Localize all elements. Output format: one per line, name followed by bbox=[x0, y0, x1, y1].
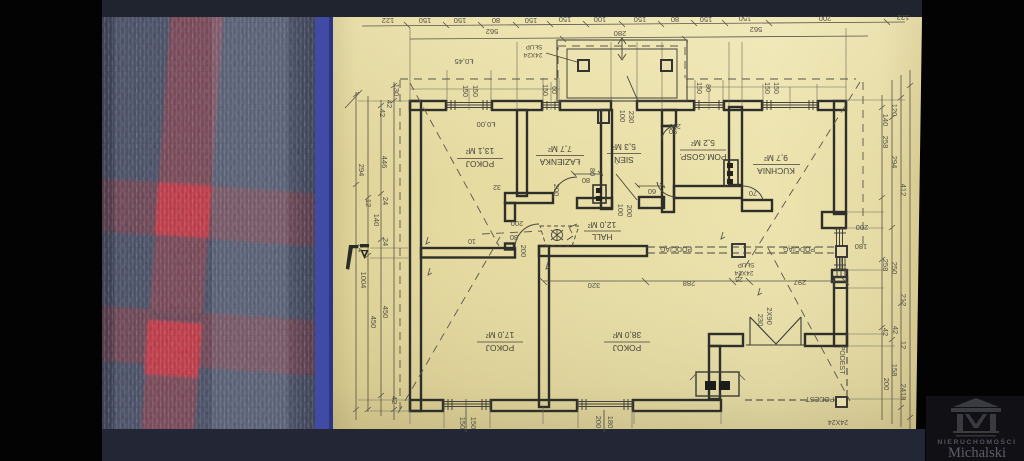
svg-text:SIEŃ: SIEŃ bbox=[614, 155, 634, 165]
svg-text:17,0 M²: 17,0 M² bbox=[486, 330, 515, 340]
svg-text:POKOJ: POKOJ bbox=[613, 343, 641, 353]
svg-text:150: 150 bbox=[471, 85, 478, 97]
svg-text:150: 150 bbox=[634, 15, 647, 24]
svg-text:PODEST: PODEST bbox=[838, 346, 845, 376]
svg-text:258: 258 bbox=[881, 259, 890, 272]
svg-text:446: 446 bbox=[380, 156, 389, 169]
svg-text:SŁUP: SŁUP bbox=[738, 261, 755, 268]
svg-text:150: 150 bbox=[525, 16, 538, 25]
svg-text:180: 180 bbox=[855, 242, 868, 251]
svg-text:POM.GOSP.: POM.GOSP. bbox=[680, 152, 727, 162]
svg-text:24: 24 bbox=[381, 238, 390, 246]
svg-text:288: 288 bbox=[683, 279, 696, 288]
svg-text:42: 42 bbox=[881, 328, 890, 336]
svg-text:2X90: 2X90 bbox=[765, 307, 774, 325]
svg-text:150: 150 bbox=[763, 82, 770, 94]
svg-text:42: 42 bbox=[385, 100, 394, 108]
svg-text:122: 122 bbox=[382, 16, 395, 25]
svg-text:80: 80 bbox=[582, 176, 590, 185]
svg-text:450: 450 bbox=[369, 316, 378, 329]
svg-text:80: 80 bbox=[671, 15, 679, 24]
svg-text:294: 294 bbox=[357, 164, 366, 177]
svg-text:412: 412 bbox=[899, 184, 908, 197]
svg-text:1004: 1004 bbox=[359, 272, 368, 289]
svg-text:PODCIĄG: PODCIĄG bbox=[783, 245, 815, 252]
svg-text:258: 258 bbox=[881, 136, 890, 149]
svg-text:297: 297 bbox=[794, 278, 807, 287]
svg-text:24: 24 bbox=[381, 197, 390, 205]
svg-text:12,0 M²: 12,0 M² bbox=[588, 220, 617, 230]
svg-text:2418: 2418 bbox=[899, 384, 908, 401]
svg-text:12: 12 bbox=[364, 199, 373, 207]
svg-text:5,3 M²: 5,3 M² bbox=[612, 142, 636, 152]
svg-text:130: 130 bbox=[392, 84, 401, 97]
svg-text:150: 150 bbox=[772, 82, 779, 94]
svg-text:70: 70 bbox=[749, 189, 757, 198]
svg-text:60: 60 bbox=[550, 86, 557, 94]
svg-text:200: 200 bbox=[819, 14, 832, 23]
svg-text:200: 200 bbox=[856, 223, 869, 232]
svg-text:90: 90 bbox=[669, 127, 677, 136]
svg-text:230: 230 bbox=[756, 314, 765, 327]
svg-text:9,7 M²: 9,7 M² bbox=[764, 153, 788, 163]
svg-text:PODEST: PODEST bbox=[805, 395, 835, 402]
svg-text:PODCIĄG: PODCIĄG bbox=[660, 245, 692, 252]
svg-text:Ł0,45: Ł0,45 bbox=[455, 57, 474, 66]
svg-text:280: 280 bbox=[614, 29, 627, 38]
svg-text:200: 200 bbox=[552, 184, 561, 197]
svg-text:250: 250 bbox=[890, 262, 899, 275]
svg-text:562: 562 bbox=[486, 27, 499, 36]
svg-text:140: 140 bbox=[372, 214, 381, 227]
svg-text:13,1 M²: 13,1 M² bbox=[466, 146, 495, 156]
svg-text:158: 158 bbox=[890, 364, 899, 377]
svg-text:Ł0,00: Ł0,00 bbox=[477, 120, 496, 129]
svg-text:100: 100 bbox=[616, 204, 625, 217]
svg-text:150: 150 bbox=[541, 84, 548, 96]
svg-text:200: 200 bbox=[625, 205, 634, 218]
svg-text:150: 150 bbox=[469, 417, 478, 430]
svg-text:150: 150 bbox=[454, 16, 467, 25]
svg-text:POKOJ: POKOJ bbox=[466, 159, 494, 169]
svg-text:42: 42 bbox=[390, 396, 399, 404]
svg-text:12: 12 bbox=[899, 341, 908, 349]
svg-text:150: 150 bbox=[458, 417, 467, 430]
svg-text:562: 562 bbox=[750, 25, 763, 34]
svg-text:80: 80 bbox=[492, 16, 500, 25]
svg-text:7,7 M²: 7,7 M² bbox=[548, 144, 572, 154]
svg-text:450: 450 bbox=[381, 306, 390, 319]
svg-text:212: 212 bbox=[899, 294, 908, 307]
svg-text:320: 320 bbox=[588, 281, 601, 290]
svg-text:150: 150 bbox=[461, 85, 468, 97]
svg-text:ŁAZIENKA: ŁAZIENKA bbox=[539, 157, 580, 167]
svg-text:24X24: 24X24 bbox=[828, 418, 848, 425]
svg-text:HALL: HALL bbox=[591, 232, 612, 242]
svg-text:200: 200 bbox=[882, 378, 891, 391]
svg-text:42: 42 bbox=[891, 326, 900, 334]
svg-text:150: 150 bbox=[559, 15, 572, 24]
svg-text:294: 294 bbox=[890, 156, 899, 169]
svg-text:200: 200 bbox=[511, 219, 524, 228]
svg-text:KUCHNIA: KUCHNIA bbox=[757, 166, 795, 176]
svg-text:SŁUP: SŁUP bbox=[526, 43, 543, 50]
svg-text:Michalski: Michalski bbox=[948, 445, 1006, 461]
svg-text:200: 200 bbox=[594, 416, 603, 429]
svg-text:10: 10 bbox=[468, 237, 476, 244]
svg-text:140: 140 bbox=[881, 114, 890, 127]
svg-text:120: 120 bbox=[890, 104, 899, 117]
svg-text:150: 150 bbox=[695, 82, 702, 94]
svg-text:80: 80 bbox=[510, 233, 518, 242]
svg-text:80: 80 bbox=[588, 168, 597, 176]
svg-text:180: 180 bbox=[606, 416, 615, 429]
svg-text:80: 80 bbox=[704, 84, 711, 92]
svg-text:38,0 M²: 38,0 M² bbox=[613, 330, 642, 340]
svg-text:POKOJ: POKOJ bbox=[486, 343, 514, 353]
svg-text:60: 60 bbox=[648, 187, 656, 196]
svg-text:200: 200 bbox=[519, 245, 528, 258]
svg-text:24X24: 24X24 bbox=[734, 269, 753, 276]
svg-text:100: 100 bbox=[594, 15, 607, 24]
svg-text:122: 122 bbox=[897, 13, 910, 22]
svg-text:100: 100 bbox=[618, 110, 627, 123]
svg-text:150: 150 bbox=[739, 14, 752, 23]
svg-text:42: 42 bbox=[378, 109, 387, 117]
svg-text:150: 150 bbox=[700, 15, 713, 24]
svg-text:5,2 M²: 5,2 M² bbox=[691, 138, 715, 148]
svg-text:32: 32 bbox=[493, 183, 501, 190]
svg-text:24X24: 24X24 bbox=[523, 51, 542, 58]
svg-text:230: 230 bbox=[627, 111, 636, 124]
svg-text:150: 150 bbox=[419, 16, 432, 25]
